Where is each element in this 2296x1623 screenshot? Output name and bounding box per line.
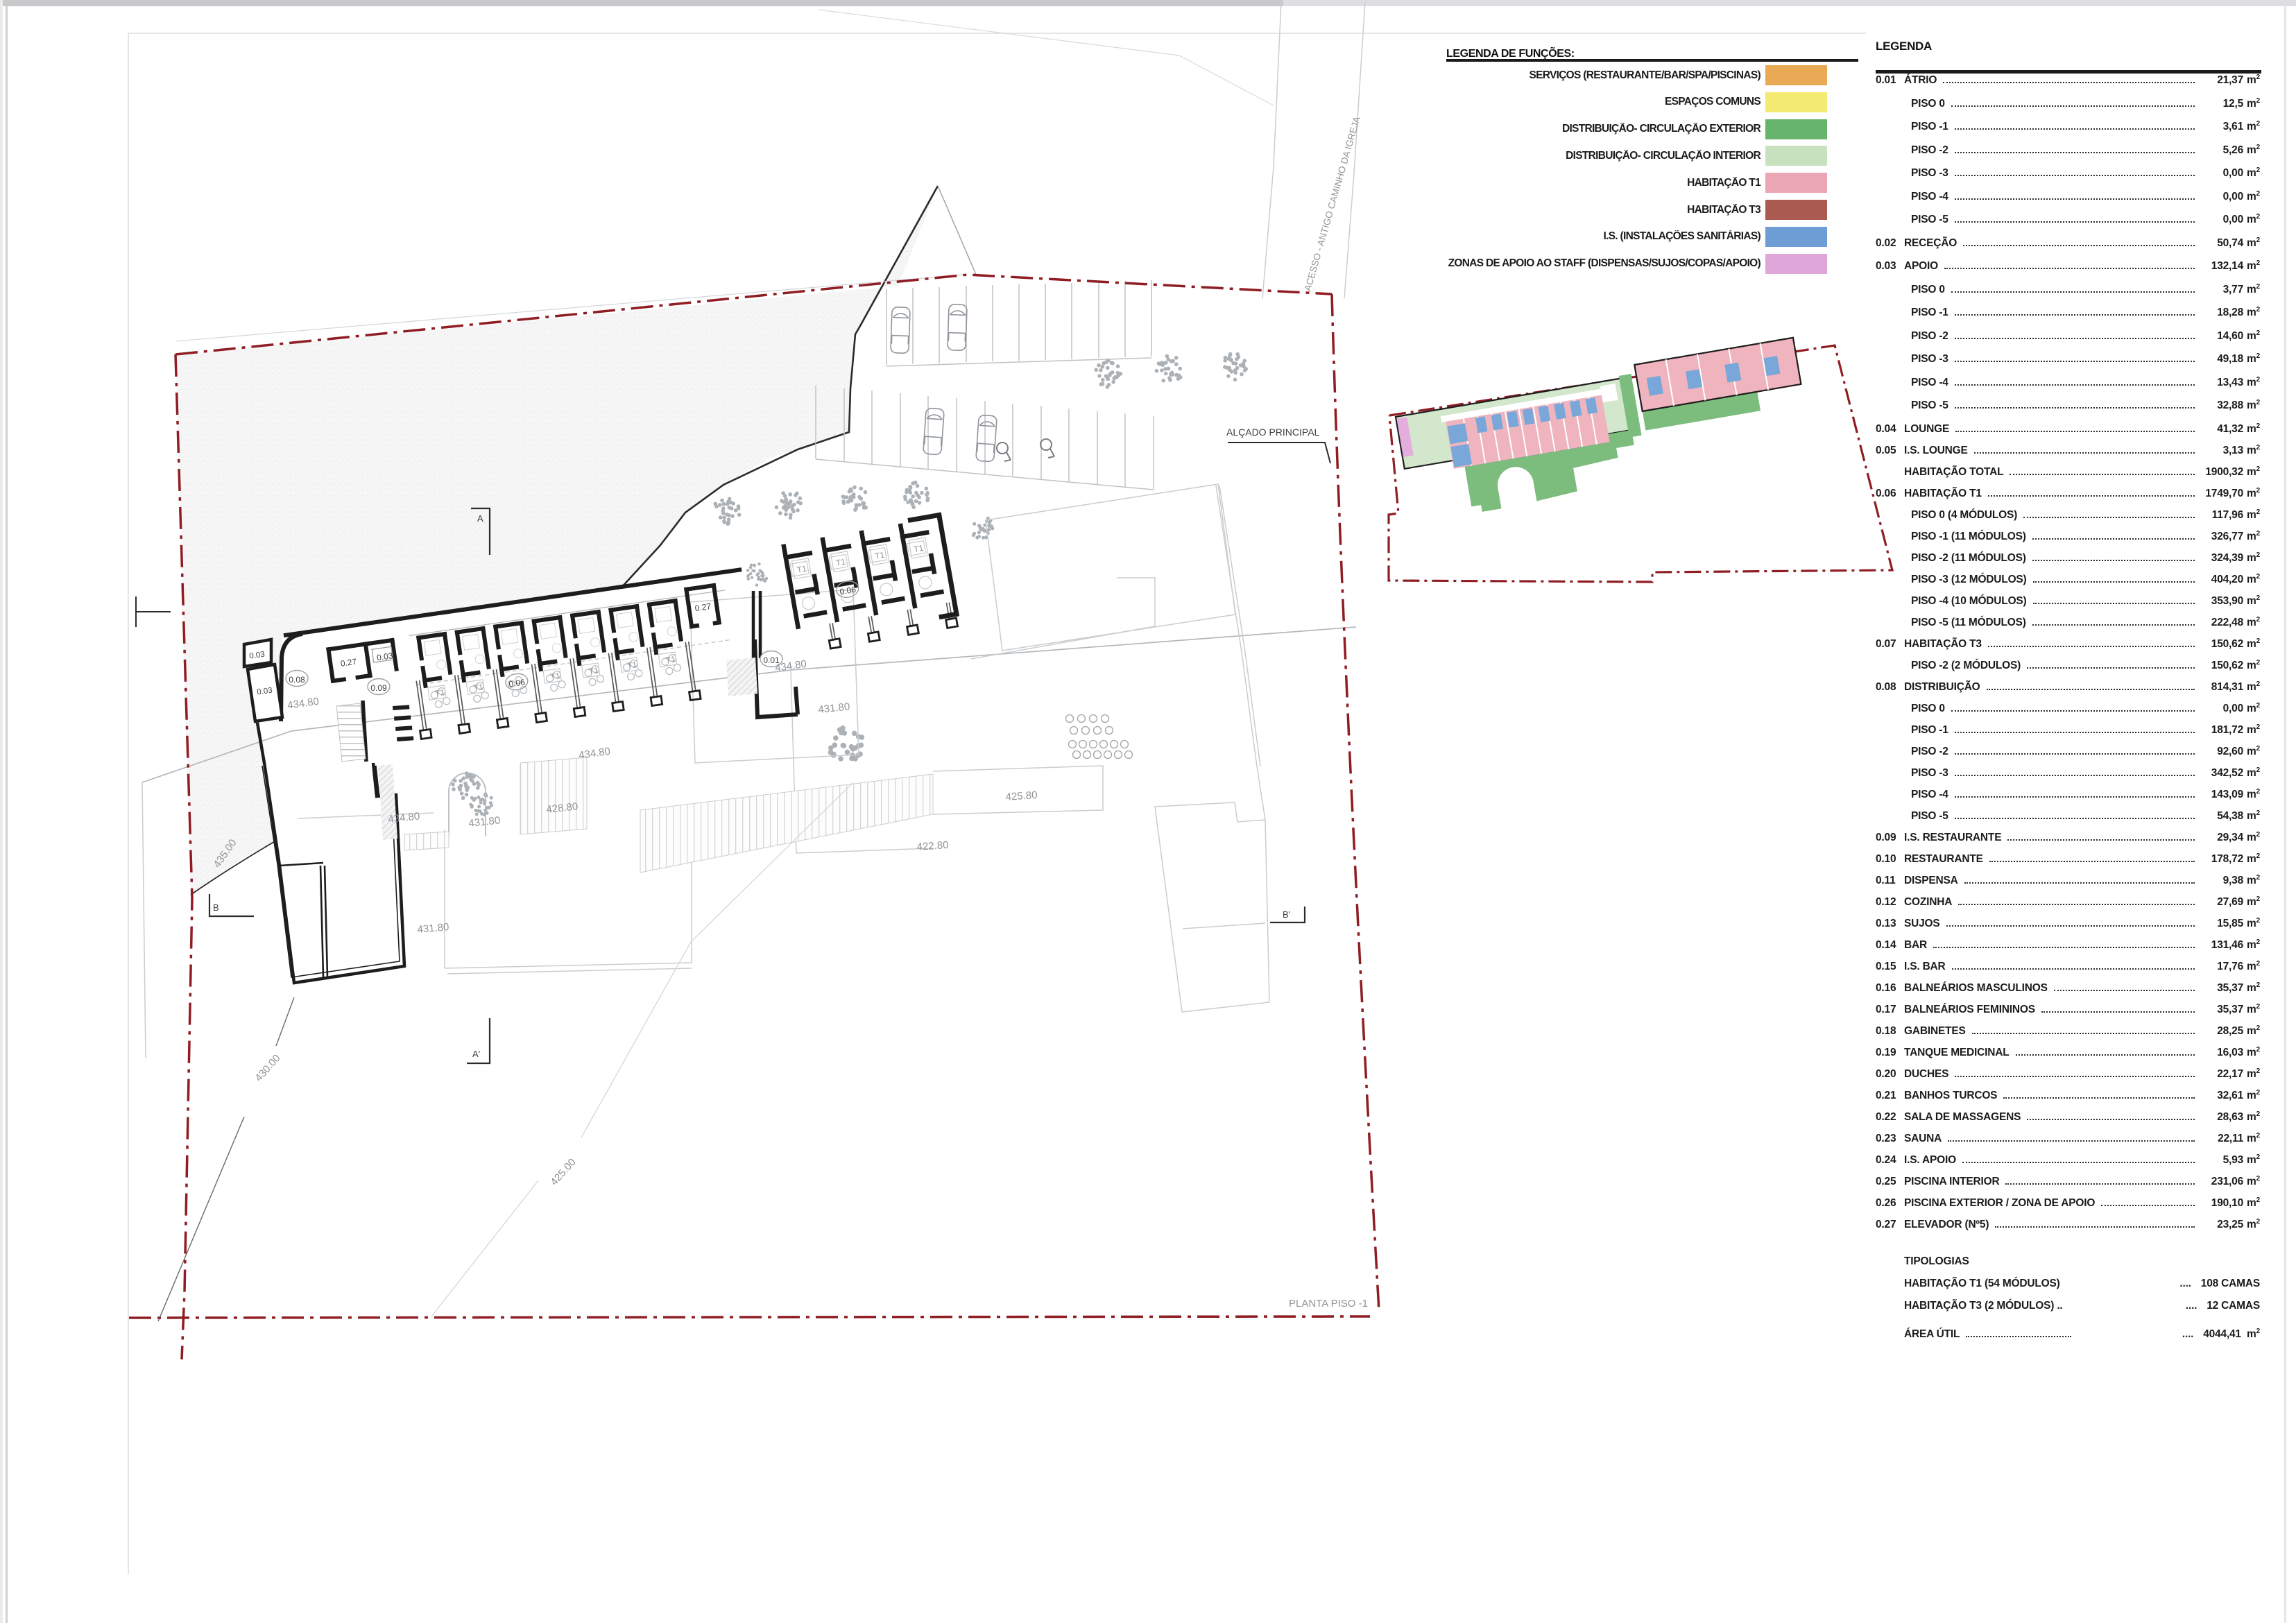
svg-text:425.80: 425.80 bbox=[1005, 789, 1038, 803]
svg-text:T1: T1 bbox=[835, 557, 847, 568]
svg-text:A: A bbox=[477, 513, 483, 524]
svg-text:431.80: 431.80 bbox=[818, 701, 850, 716]
svg-text:430.00: 430.00 bbox=[252, 1052, 282, 1083]
svg-text:0.27: 0.27 bbox=[340, 657, 357, 669]
svg-text:434.80: 434.80 bbox=[286, 696, 320, 712]
svg-text:B: B bbox=[213, 902, 219, 913]
svg-text:ALÇADO PRINCIPAL: ALÇADO PRINCIPAL bbox=[1226, 427, 1320, 438]
svg-text:T1: T1 bbox=[665, 654, 676, 665]
svg-text:ACESSO - ANTIGO CAMINHO DA IGR: ACESSO - ANTIGO CAMINHO DA IGREJA bbox=[1302, 115, 1362, 292]
svg-text:T1: T1 bbox=[874, 550, 886, 561]
svg-text:T1: T1 bbox=[626, 660, 637, 671]
svg-text:PLANTA PISO -1: PLANTA PISO -1 bbox=[1289, 1298, 1368, 1309]
svg-text:T1: T1 bbox=[434, 687, 445, 698]
svg-text:0.09: 0.09 bbox=[370, 683, 387, 693]
svg-text:422.80: 422.80 bbox=[916, 839, 949, 853]
svg-text:T1: T1 bbox=[588, 665, 599, 676]
svg-text:T1: T1 bbox=[913, 543, 925, 554]
svg-text:0.27: 0.27 bbox=[694, 601, 712, 613]
svg-text:T1: T1 bbox=[473, 682, 484, 693]
svg-text:425.00: 425.00 bbox=[548, 1156, 578, 1187]
svg-text:T1: T1 bbox=[549, 671, 560, 682]
svg-text:434.80: 434.80 bbox=[578, 746, 611, 762]
svg-text:B': B' bbox=[1283, 909, 1290, 920]
svg-text:431.80: 431.80 bbox=[468, 814, 501, 830]
svg-text:0.03: 0.03 bbox=[376, 651, 393, 662]
svg-text:0.08: 0.08 bbox=[289, 675, 305, 685]
svg-text:A': A' bbox=[472, 1049, 480, 1059]
svg-text:434.80: 434.80 bbox=[388, 810, 420, 825]
svg-text:T1: T1 bbox=[796, 563, 808, 574]
